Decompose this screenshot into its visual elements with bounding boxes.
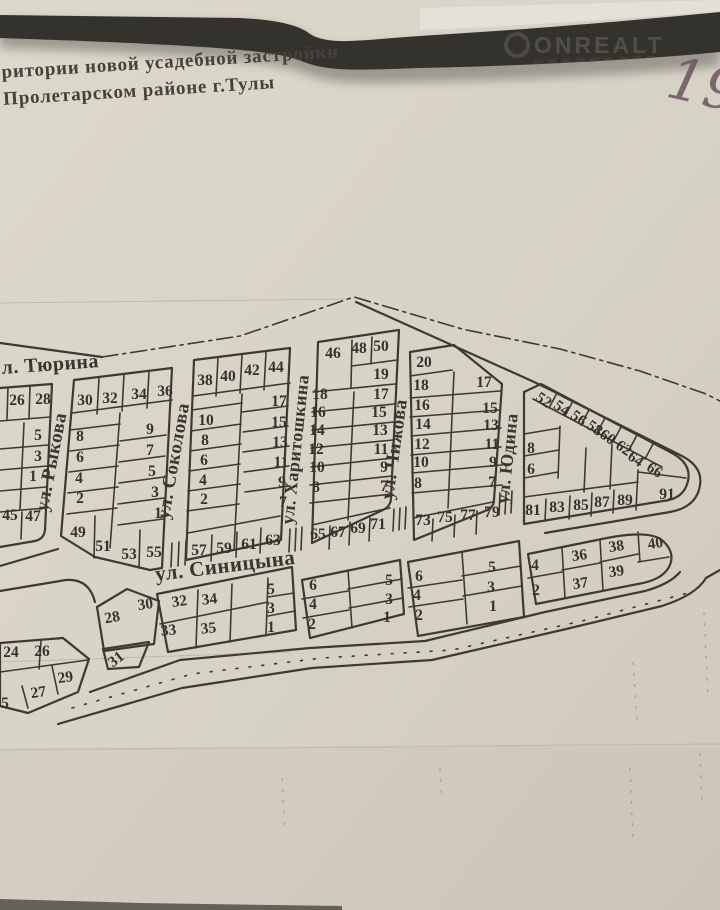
plot-label: 77 [460, 507, 476, 524]
plot-label: 1 [267, 619, 275, 636]
plot-label: 28 [103, 608, 121, 627]
plot-label: 5 [267, 581, 275, 598]
plot-label: 4 [413, 587, 421, 604]
plot-label: 11 [274, 454, 289, 471]
plot-label: 9 [380, 459, 388, 476]
plot-label: 9 [146, 421, 154, 438]
plot-label: 13 [272, 434, 288, 451]
plot-label: 63 [265, 532, 281, 549]
plot-label: 28 [35, 391, 51, 408]
plot-label: 5 [488, 559, 496, 576]
plot-label: 7 [146, 442, 154, 459]
plot-label: 2 [76, 490, 84, 507]
plot-label: 6 [527, 461, 535, 478]
plot-label: 5 [385, 572, 393, 589]
plot-label: 24 [3, 644, 19, 661]
plot-label: 8 [76, 428, 84, 445]
plot-label: 27 [30, 683, 48, 702]
plot-label: 5 [34, 427, 42, 444]
plot-label: 1 [489, 598, 497, 615]
plot-label: 39 [608, 562, 626, 581]
plot-label: 11 [374, 441, 389, 458]
plot-label: 85 [573, 497, 589, 514]
plot-label: 34 [201, 590, 218, 609]
plot-label: 75 [437, 509, 453, 526]
plot-label: 45 [2, 507, 18, 524]
plot-label: 18 [312, 386, 328, 403]
paper-lower-shade [0, 747, 720, 910]
plot-label: 49 [70, 524, 86, 541]
plot-label: 89 [617, 492, 633, 509]
plot-label: 69 [350, 520, 366, 537]
plot-label: 14 [309, 422, 325, 439]
plot-label: 11 [485, 436, 500, 453]
plot-label: 36 [571, 546, 589, 565]
plot-label: 5 [1, 695, 9, 712]
plot-label: 46 [325, 345, 341, 362]
plot-label: 87 [594, 494, 610, 511]
plot-label: 2 [200, 491, 208, 508]
plot-label: 57 [191, 542, 207, 559]
plot-label: 9 [278, 474, 286, 491]
plot-label: 4 [75, 470, 83, 487]
plot-label: 50 [373, 338, 389, 355]
plot-label: 35 [200, 619, 217, 638]
plot-label: 91 [659, 486, 675, 503]
plot-label: 5 [148, 463, 156, 480]
plot-label: 6 [76, 449, 84, 466]
plot-label: 47 [25, 508, 41, 525]
plot-label: 7 [279, 494, 287, 511]
plot-label: 8 [527, 440, 535, 457]
plot-label: 3 [34, 448, 42, 465]
plot-label: 18 [413, 377, 429, 394]
plot-label: 32 [102, 390, 118, 407]
plot-label: 30 [137, 595, 155, 614]
plot-label: 7 [380, 478, 388, 495]
plot-label: 42 [244, 362, 260, 379]
plot-label: 44 [268, 359, 284, 376]
plot-label: 17 [476, 374, 492, 391]
plot-label: 17 [271, 393, 287, 410]
plot-label: 6 [415, 568, 423, 585]
plot-label: 10 [413, 454, 429, 471]
plot-label: 1 [154, 505, 162, 522]
plot-label: 73 [415, 512, 431, 529]
plot-label: 4 [531, 557, 539, 574]
plot-label: 26 [9, 392, 25, 409]
plot-label: 32 [171, 592, 189, 611]
plot-label: 29 [57, 668, 75, 687]
plot-label: 7 [488, 474, 496, 491]
plan-map: ритории новой усадебной застройки Пролет… [0, 0, 720, 910]
plot-label: 38 [608, 537, 626, 556]
plot-label: 13 [483, 417, 499, 434]
plot-label: 10 [198, 412, 214, 429]
plot-label: 6 [200, 452, 208, 469]
plot-label: 19 [373, 366, 389, 383]
plot-label: 34 [131, 386, 147, 403]
plot-label: 4 [199, 472, 207, 489]
scanned-plan-page: ритории новой усадебной застройки Пролет… [0, 0, 720, 910]
plot-label: 17 [373, 386, 389, 403]
plot-label: 71 [370, 516, 386, 533]
plot-label: 37 [572, 574, 590, 593]
plot-label: 40 [647, 534, 665, 553]
plot-label: 9 [489, 454, 497, 471]
plot-label: 65 [310, 526, 326, 543]
plot-label: 36 [157, 383, 173, 400]
plot-label: 40 [220, 368, 236, 385]
plot-label: 14 [415, 416, 431, 433]
plot-label: 30 [77, 392, 93, 409]
plot-label: 13 [372, 422, 388, 439]
plot-label: 3 [487, 579, 495, 596]
plot-label: 59 [216, 540, 232, 557]
plot-label: 55 [146, 544, 162, 561]
plot-label: 20 [416, 354, 432, 371]
plot-label: 1 [383, 609, 391, 626]
plot-label: 12 [308, 441, 324, 458]
plot-label: 3 [151, 484, 159, 501]
plot-label: 3 [267, 600, 275, 617]
watermark-text: ONREALT [534, 32, 664, 58]
plot-label: 15 [371, 404, 387, 421]
plot-label: 2 [415, 607, 423, 624]
plot-label: 61 [241, 536, 257, 553]
plot-label: 38 [197, 372, 213, 389]
plot-label: 67 [330, 524, 346, 541]
plot-label: 3 [385, 591, 393, 608]
plot-label: 81 [525, 502, 541, 519]
plot-label: 33 [160, 621, 177, 640]
plot-label: 15 [271, 414, 287, 431]
plot-label: 4 [309, 596, 317, 613]
plot-label: 53 [121, 546, 137, 563]
plot-label: 6 [309, 577, 317, 594]
plot-label: 8 [201, 432, 209, 449]
plot-label: 51 [95, 538, 111, 555]
plot-label: 15 [482, 400, 498, 417]
plot-label: 16 [310, 404, 326, 421]
plot-label: 8 [414, 475, 422, 492]
plot-label: 10 [309, 459, 325, 476]
plot-label: 48 [351, 340, 367, 357]
plot-label: 8 [312, 479, 320, 496]
plot-label: 1 [29, 468, 37, 485]
plot-label: 12 [414, 436, 430, 453]
plot-label: 16 [414, 397, 430, 414]
plot-label: 79 [484, 504, 500, 521]
plot-label: 83 [549, 499, 565, 516]
plot-label: 2 [308, 616, 316, 633]
plot-label: 2 [532, 582, 540, 599]
plot-label: 26 [34, 643, 50, 660]
